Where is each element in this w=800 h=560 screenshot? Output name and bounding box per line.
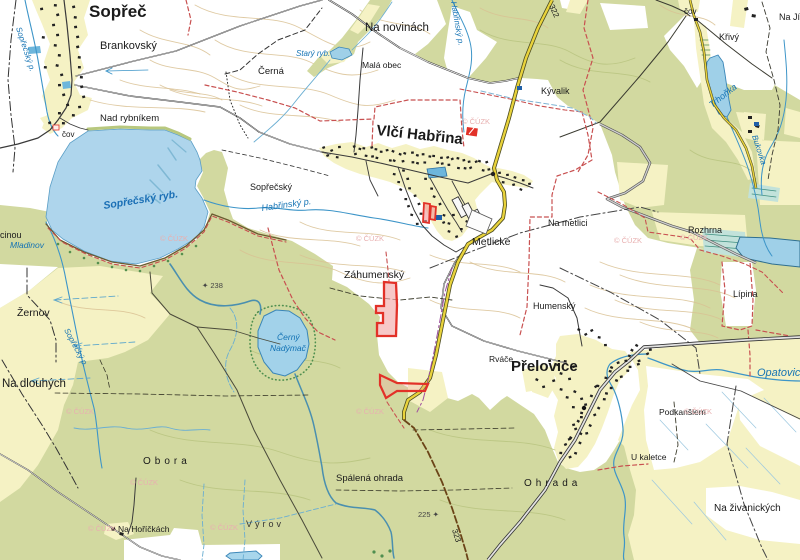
svg-text:Sopřečský: Sopřečský bbox=[250, 182, 293, 192]
svg-text:Černý: Černý bbox=[277, 332, 300, 342]
svg-text:Spálená ohrada: Spálená ohrada bbox=[336, 473, 404, 484]
svg-text:© ČÚZK: © ČÚZK bbox=[614, 236, 642, 245]
svg-text:Na metlici: Na metlici bbox=[548, 218, 588, 228]
svg-text:© ČÚZK: © ČÚZK bbox=[88, 524, 116, 533]
svg-text:Černá: Černá bbox=[258, 66, 285, 77]
svg-text:© ČÚZK: © ČÚZK bbox=[680, 233, 708, 242]
svg-text:Nadýmač: Nadýmač bbox=[270, 343, 307, 353]
svg-text:Na živanických: Na živanických bbox=[714, 503, 781, 514]
svg-text:Výrov: Výrov bbox=[246, 519, 284, 529]
svg-text:Humenský: Humenský bbox=[533, 301, 576, 311]
svg-text:cinou: cinou bbox=[0, 230, 22, 240]
svg-text:U kaletce: U kaletce bbox=[631, 452, 667, 462]
svg-text:© ČÚZK: © ČÚZK bbox=[356, 407, 384, 416]
svg-text:Přelovice: Přelovice bbox=[511, 358, 578, 375]
svg-text:© ČÚZK: © ČÚZK bbox=[356, 234, 384, 243]
svg-text:Na dlouhých: Na dlouhých bbox=[2, 378, 66, 390]
svg-text:© ČÚZK: © ČÚZK bbox=[462, 117, 490, 126]
svg-text:čov: čov bbox=[684, 7, 696, 16]
svg-text:čov: čov bbox=[62, 130, 74, 139]
svg-text:Na novinách: Na novinách bbox=[365, 22, 429, 34]
svg-text:225 ✦: 225 ✦ bbox=[418, 510, 440, 519]
svg-text:Na Hoříčkách: Na Hoříčkách bbox=[118, 524, 170, 534]
svg-text:© ČÚZK: © ČÚZK bbox=[160, 234, 188, 243]
svg-text:Malá obec: Malá obec bbox=[362, 60, 402, 70]
svg-text:Žernov: Žernov bbox=[17, 306, 50, 319]
svg-text:Mladinov: Mladinov bbox=[10, 240, 45, 250]
svg-text:© ČÚZK: © ČÚZK bbox=[130, 478, 158, 487]
svg-text:Lípina: Lípina bbox=[733, 289, 758, 299]
svg-text:Ohrada: Ohrada bbox=[524, 478, 581, 489]
svg-text:Záhumenský: Záhumenský bbox=[344, 269, 405, 281]
svg-text:Kývalik: Kývalik bbox=[541, 86, 570, 96]
svg-text:Rváče: Rváče bbox=[489, 354, 513, 364]
svg-text:© ČÚZK: © ČÚZK bbox=[66, 407, 94, 416]
svg-text:Opatovick: Opatovick bbox=[757, 367, 800, 379]
svg-text:Obora: Obora bbox=[143, 456, 191, 467]
svg-text:© ČÚZK: © ČÚZK bbox=[210, 523, 238, 532]
svg-text:© ČÚZK: © ČÚZK bbox=[684, 407, 712, 416]
svg-text:Brankovský: Brankovský bbox=[100, 40, 157, 52]
svg-text:Metlické: Metlické bbox=[472, 236, 511, 248]
svg-text:Sopřeč: Sopřeč bbox=[89, 2, 147, 21]
svg-text:Starý ryb.: Starý ryb. bbox=[296, 49, 330, 58]
svg-text:Křivý: Křivý bbox=[719, 32, 739, 42]
svg-text:Nad rybníkem: Nad rybníkem bbox=[100, 113, 159, 124]
svg-text:Na Jíl: Na Jíl bbox=[779, 12, 800, 22]
svg-text:✦ 238: ✦ 238 bbox=[202, 281, 223, 290]
